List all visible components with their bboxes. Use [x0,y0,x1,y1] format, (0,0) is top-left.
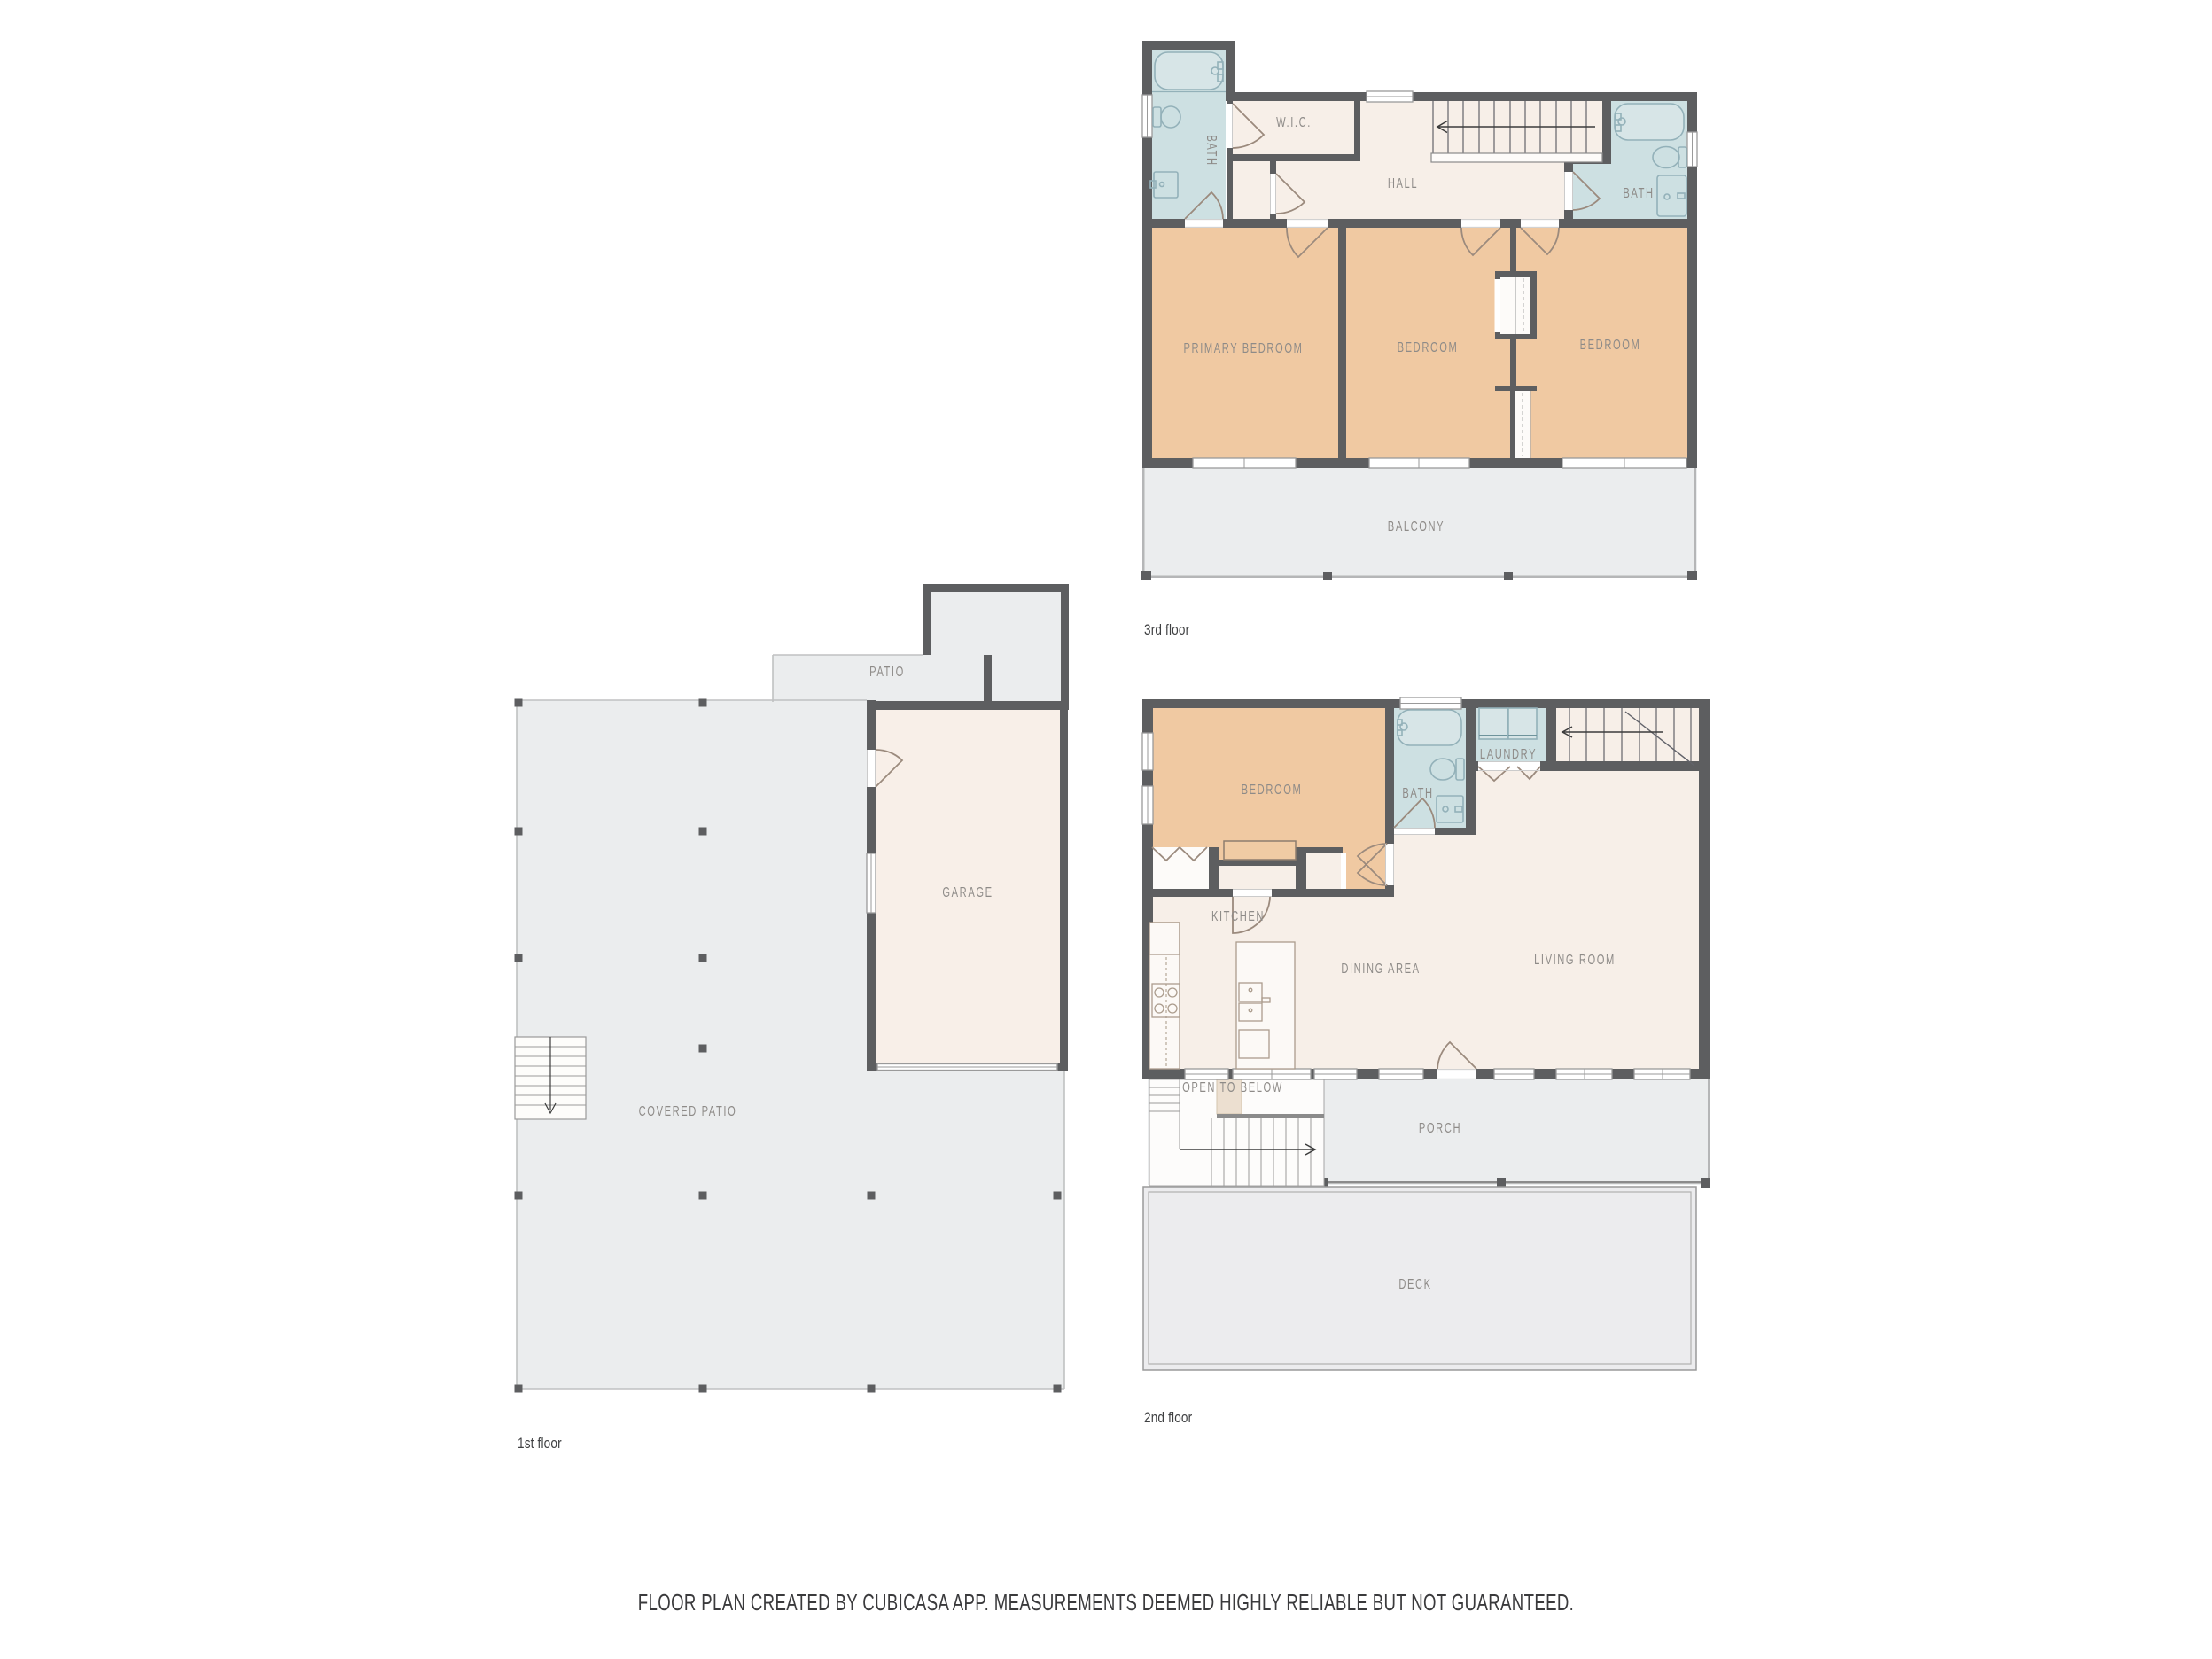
svg-text:3rd floor: 3rd floor [1144,622,1189,639]
svg-text:PORCH: PORCH [1419,1120,1461,1135]
svg-text:W.I.C.: W.I.C. [1276,114,1312,129]
svg-text:OPEN TO BELOW: OPEN TO BELOW [1182,1079,1283,1094]
svg-text:LAUNDRY: LAUNDRY [1480,746,1537,761]
svg-text:BEDROOM: BEDROOM [1580,337,1641,352]
svg-text:BALCONY: BALCONY [1388,518,1445,534]
svg-text:BATH: BATH [1402,785,1433,800]
svg-text:LIVING ROOM: LIVING ROOM [1534,952,1616,967]
svg-text:DINING AREA: DINING AREA [1341,961,1420,976]
svg-text:KITCHEN: KITCHEN [1211,908,1265,923]
svg-text:HALL: HALL [1388,175,1418,191]
svg-text:PRIMARY BEDROOM: PRIMARY BEDROOM [1184,340,1304,355]
svg-text:BEDROOM: BEDROOM [1398,339,1459,354]
svg-text:GARAGE: GARAGE [942,884,993,900]
svg-text:FLOOR PLAN CREATED BY CUBICASA: FLOOR PLAN CREATED BY CUBICASA APP. MEAS… [638,1590,1574,1616]
svg-text:1st floor: 1st floor [518,1436,562,1453]
svg-text:BATH: BATH [1204,135,1219,166]
svg-text:BEDROOM: BEDROOM [1242,782,1303,797]
svg-text:PATIO: PATIO [869,664,905,679]
svg-text:DECK: DECK [1398,1276,1431,1291]
svg-text:2nd floor: 2nd floor [1144,1410,1192,1427]
svg-text:BATH: BATH [1623,185,1654,200]
svg-text:COVERED PATIO: COVERED PATIO [639,1103,737,1118]
